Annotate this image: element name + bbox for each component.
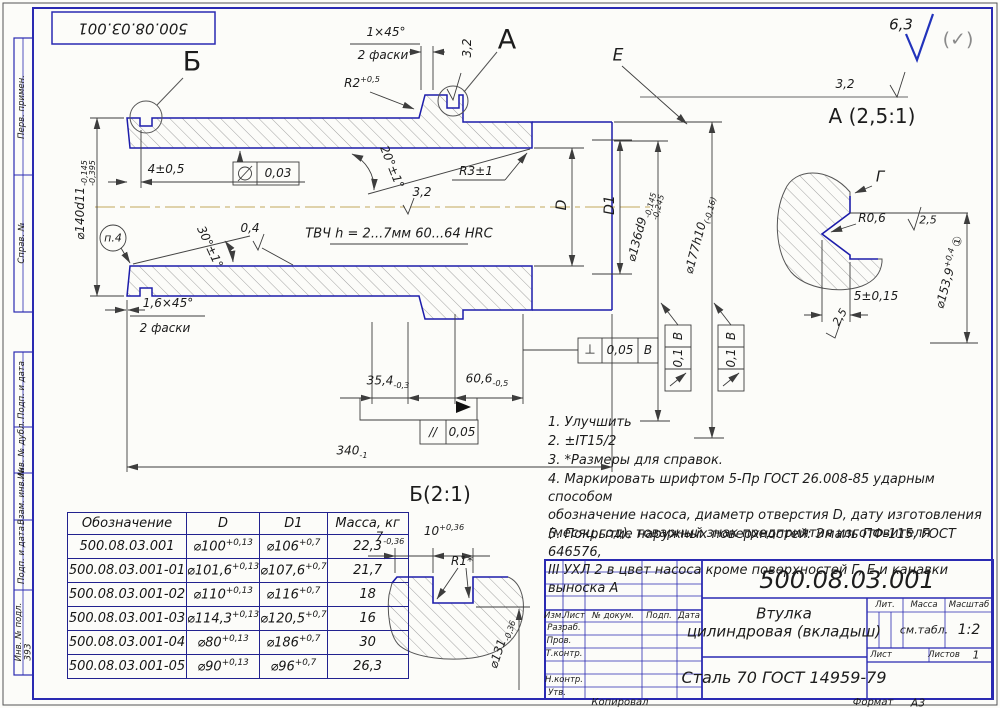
tol-runout1-value: 0,1: [672, 348, 684, 367]
tol-cylindricity-value: 0,03: [265, 167, 292, 179]
col-doc: № докум.: [592, 612, 634, 621]
row-tkontr: Т.контр.: [546, 650, 583, 659]
dim-chamfer-16x45-note: 2 фаски: [140, 322, 191, 334]
table-row: 500.08.03.001-02 ⌀110+0,13 ⌀116+0,7 18: [68, 583, 409, 607]
row-razrab: Разраб.: [547, 624, 580, 633]
margin-label-perv-primen: Перв. примен.: [18, 75, 27, 139]
general-roughness-value: 6,3: [889, 18, 913, 33]
table-row: 500.08.03.001-03 ⌀114,3+0,13 ⌀120,5+0,7 …: [68, 607, 409, 631]
col-header-d: D: [187, 513, 260, 535]
note-1: 1. Улучшить: [548, 414, 632, 432]
margin-label-vzam-inv: Взам. инв. №: [18, 467, 27, 525]
col-header-mass: Масса, кг: [327, 513, 408, 535]
table-row: 500.08.03.001-01 ⌀101,6+0,13 ⌀107,6+0,7 …: [68, 559, 409, 583]
surface-label-e: Е: [613, 48, 624, 65]
tol-runout2-value: 0,1: [725, 348, 737, 367]
dim-chamfer-1x45-note: 2 фаски: [358, 49, 409, 61]
tol-perpendicularity-symbol: ⊥: [584, 344, 595, 357]
detail-a-roughness-top: 2,5: [919, 215, 937, 226]
roughness-e-value: 3,2: [835, 78, 854, 90]
format-value: А3: [911, 698, 926, 708]
scale-label: Масштаб: [949, 601, 989, 610]
dim-chamfer-16x45: 1,6×45°: [143, 297, 193, 309]
note-tvch-hardness: ТВЧ h = 2...7мм 60...64 HRC: [305, 228, 492, 241]
callout-p4: п.4: [104, 233, 122, 244]
scale-value: 1:2: [958, 623, 981, 637]
mass-value: см.табл.: [900, 625, 948, 636]
col-header-designation: Обозначение: [68, 513, 187, 535]
copied-label: Копировал: [591, 698, 648, 708]
col-podp: Подп.: [646, 612, 672, 621]
roughness-groove-value: 3,2: [461, 38, 473, 57]
detail-b-title: Б(2:1): [409, 484, 471, 504]
note-3: 3. *Размеры для справок.: [548, 452, 723, 470]
row-prov: Пров.: [547, 637, 572, 646]
dim-606: 60,6-0,5: [466, 373, 509, 388]
tol-perpendicularity-value: 0,05: [607, 344, 634, 356]
table-row: 500.08.03.001-04 ⌀80+0,13 ⌀186+0,7 30: [68, 631, 409, 655]
sheets-label: Листов: [928, 651, 960, 660]
margin-label-inv-podl: Инв. № подл.: [15, 603, 24, 662]
table-row: 500.08.03.001 ⌀100+0,13 ⌀106+0,7 22,3: [68, 535, 409, 559]
roughness-bore-value: 3,2: [412, 186, 431, 198]
general-roughness-alt-mark: (✓): [943, 31, 974, 50]
dim-d-label: D: [555, 200, 569, 211]
dim-4: 4±0,5: [148, 163, 185, 175]
margin-label-podp-data-1: Подп. и дата: [18, 361, 27, 419]
col-header-d1: D1: [260, 513, 327, 535]
material-spec: Сталь 70 ГОСТ 14959-79: [681, 670, 886, 686]
table-row: 500.08.03.001-05 ⌀90+0,13 ⌀96+0,7 26,3: [68, 655, 409, 679]
part-name-line2: цилиндровая (вкладыш): [687, 625, 881, 640]
col-data: Дата: [678, 612, 700, 621]
stamp-doc-number-top: 500.08.03.001: [78, 21, 188, 36]
roughness-04-value: 0,4: [240, 222, 259, 234]
detail-a-surface-g: Г: [876, 170, 884, 185]
margin-label-podp-data-2: Подп. и дата: [18, 526, 27, 584]
col-izm: Изм.: [544, 612, 564, 621]
dim-354: 35,4-0,3: [367, 375, 410, 390]
note-2: 2. ±IT15/2: [548, 433, 616, 451]
tol-parallelism-value: 0,05: [449, 426, 476, 438]
tol-runout2-datum: В: [725, 332, 737, 340]
titleblock-doc-number: 500.08.03.001: [759, 568, 935, 592]
tol-parallelism-symbol: //: [429, 426, 437, 438]
mass-label: Масса: [910, 601, 937, 610]
detail-b-r1: R1*: [451, 555, 473, 567]
dim-chamfer-1x45: 1×45°: [367, 26, 406, 38]
dim-r3: R3±1: [459, 165, 493, 177]
detail-a-r06: R0,6: [858, 212, 885, 224]
part-section-view: [95, 52, 650, 319]
sheet-label: Лист: [870, 651, 892, 660]
dim-340: 340-1: [336, 445, 367, 460]
tol-runout1-datum: В: [672, 332, 684, 340]
detail-b-dim10: 10+0,36: [424, 523, 464, 537]
view-label-b: Б: [183, 49, 202, 76]
drawing-sheet: 500.08.03.001 Перв. примен. Справ. № Под…: [0, 0, 1000, 708]
row-nkontr: Н.контр.: [545, 676, 583, 685]
sheets-value: 1: [973, 650, 980, 661]
col-list: Лист: [563, 612, 585, 621]
inventory-number-value: 393: [25, 643, 34, 660]
dim-d140: ⌀140d11-0,145-0,395: [74, 160, 98, 240]
tol-perpendicularity-datum: В: [644, 344, 652, 356]
dim-r2: R2+0,5: [344, 75, 380, 89]
row-utv: Утв.: [548, 689, 566, 698]
detail-a-dim5: 5±0,15: [854, 290, 898, 302]
part-name-line1: Втулка: [756, 607, 812, 622]
variants-table: Обозначение D D1 Масса, кг 500.08.03.001…: [67, 512, 409, 679]
dim-d1-label: D1: [603, 195, 617, 215]
view-label-a: А: [498, 27, 516, 54]
margin-label-sprav-no: Справ. №: [18, 222, 27, 263]
format-label: Формат: [853, 698, 894, 708]
lit-label: Лит.: [875, 601, 895, 610]
detail-a-title: А (2,5:1): [829, 106, 916, 126]
variants-table-header-row: Обозначение D D1 Масса, кг: [68, 513, 409, 535]
